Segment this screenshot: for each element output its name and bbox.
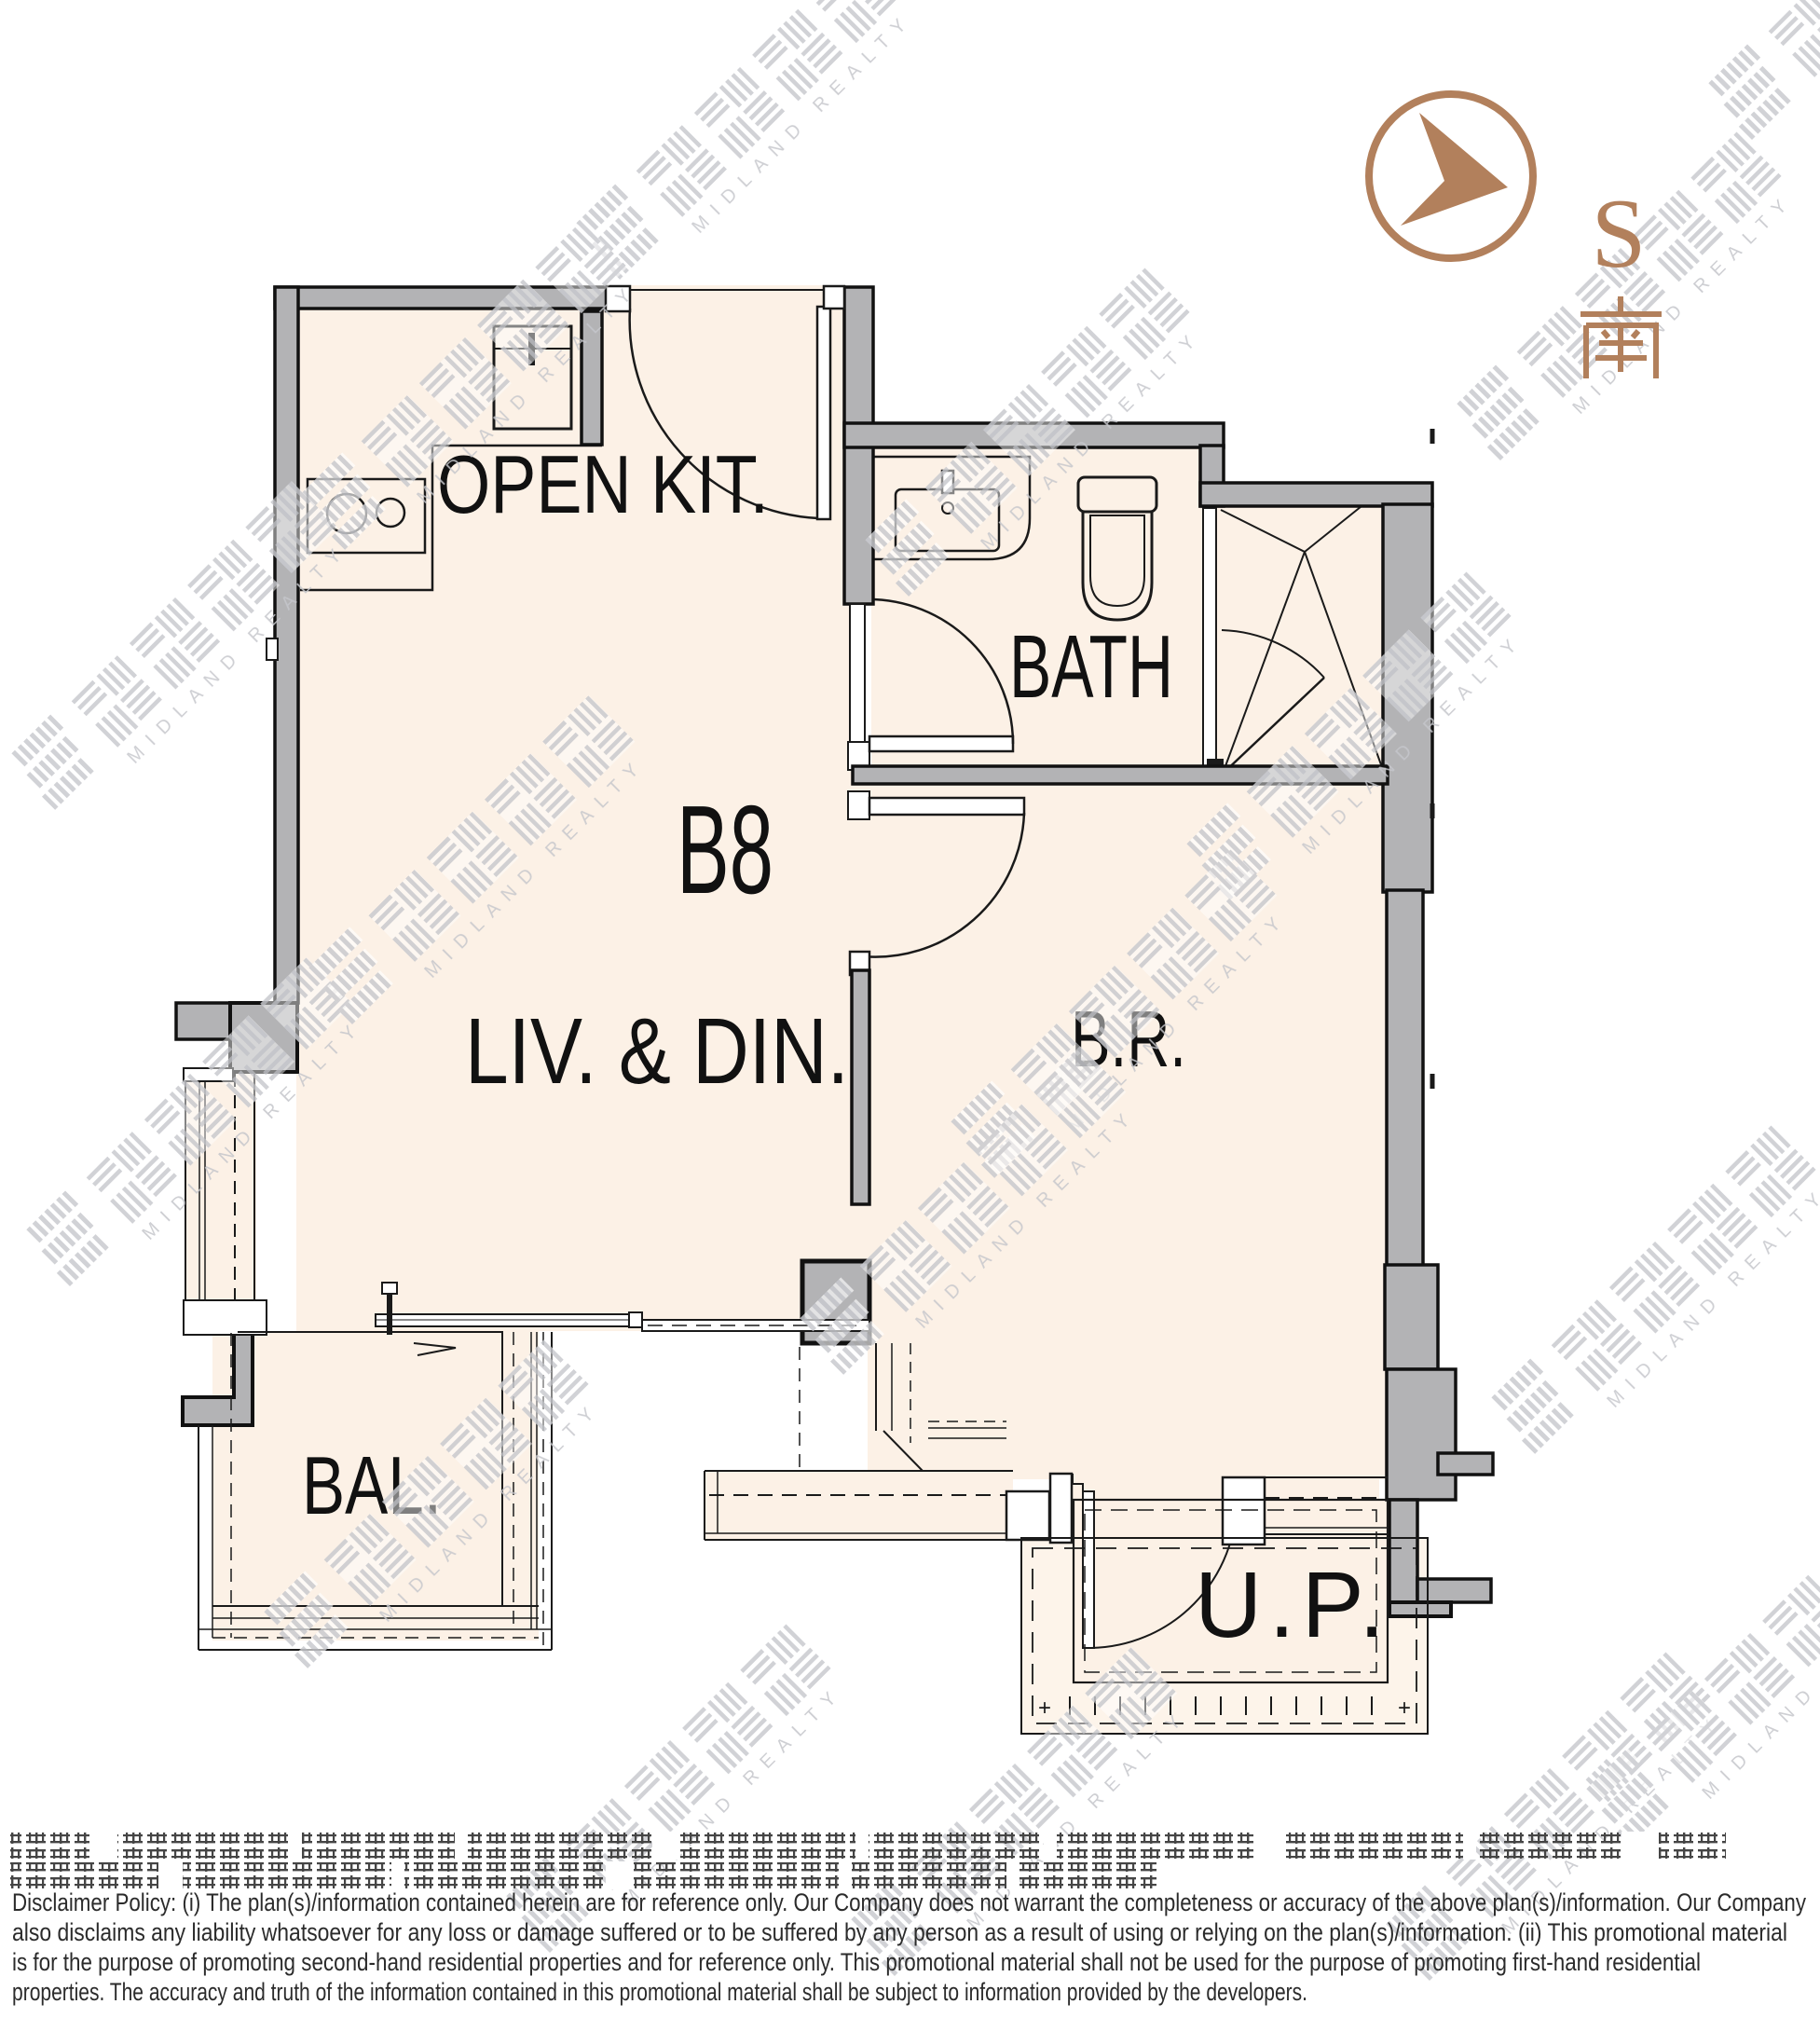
svg-text:is for the purpose of promotin: is for the purpose of promoting second-h… bbox=[12, 1948, 1701, 1976]
svg-text:B8: B8 bbox=[677, 779, 773, 920]
svg-text:also disclaims any liability w: also disclaims any liability whatsoever … bbox=[12, 1918, 1787, 1946]
svg-text:LIV. & DIN.: LIV. & DIN. bbox=[465, 999, 849, 1104]
svg-text:Disclaimer Policy: (i) The pla: Disclaimer Policy: (i) The plan(s)/infor… bbox=[12, 1888, 1806, 1916]
svg-text:S: S bbox=[1592, 179, 1647, 288]
svg-text:+: + bbox=[1398, 1695, 1411, 1721]
svg-text:+: + bbox=[1038, 1695, 1051, 1721]
svg-text:BATH: BATH bbox=[1009, 617, 1173, 717]
svg-text:properties. The accuracy and t: properties. The accuracy and truth of th… bbox=[12, 1978, 1307, 2006]
svg-text:OPEN KIT.: OPEN KIT. bbox=[437, 438, 769, 530]
